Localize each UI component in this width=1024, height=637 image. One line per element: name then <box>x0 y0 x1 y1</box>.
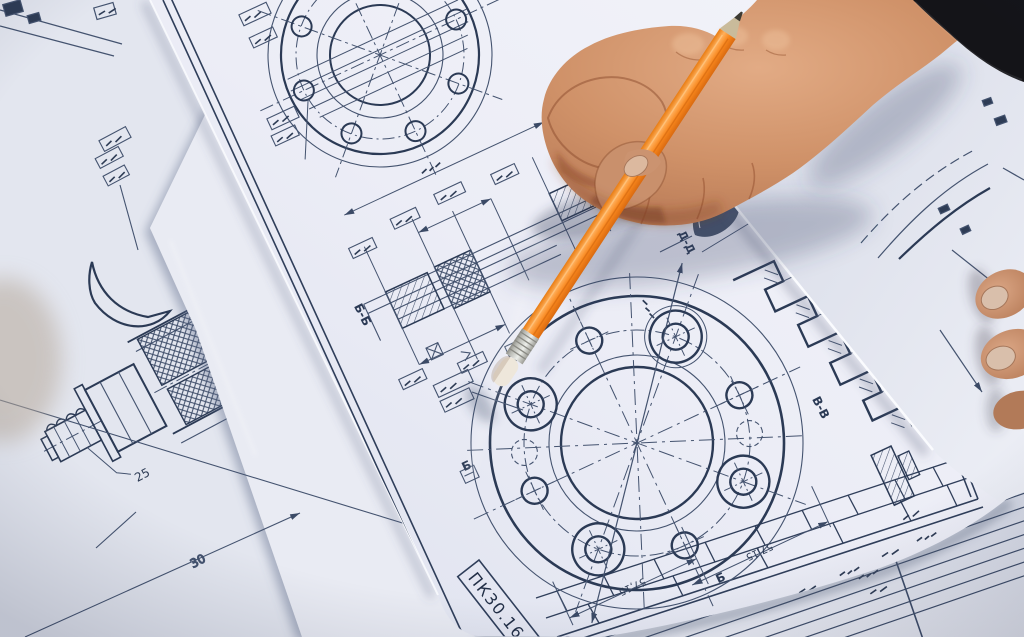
vignette <box>0 0 1024 637</box>
scene: 25 30 <box>0 0 1024 637</box>
photo-of-blueprints: 25 30 <box>0 0 1024 637</box>
